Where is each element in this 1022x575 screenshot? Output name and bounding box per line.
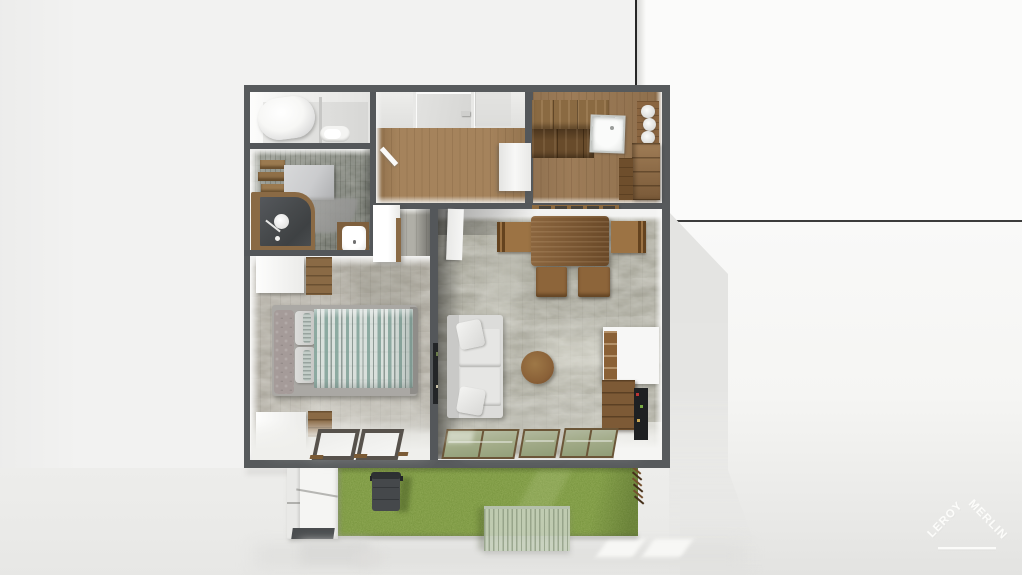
svg-text:MERLIN: MERLIN	[966, 498, 1009, 542]
svg-text:LEROY: LEROY	[926, 500, 966, 540]
